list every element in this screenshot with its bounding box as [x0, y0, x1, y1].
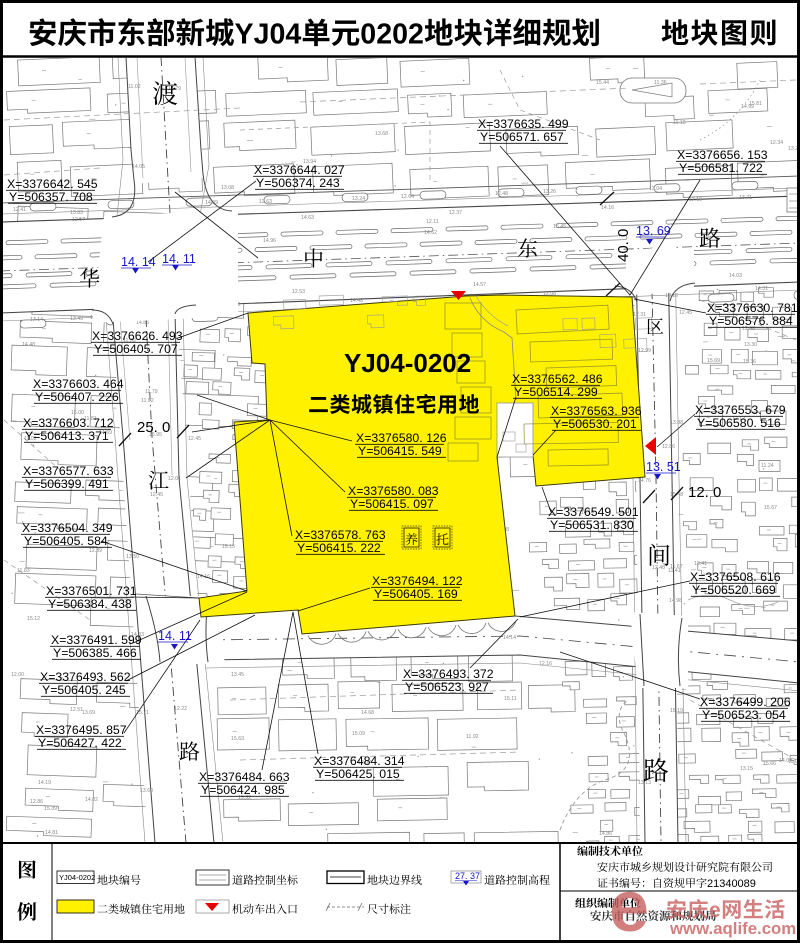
svg-text:X=3376644. 027: X=3376644. 027	[254, 163, 345, 177]
svg-text:15.36: 15.36	[743, 359, 756, 365]
svg-text:14.19: 14.19	[38, 780, 51, 786]
svg-text:Y=506405. 707: Y=506405. 707	[94, 342, 178, 356]
svg-text:Y=506523. 054: Y=506523. 054	[702, 708, 786, 722]
svg-text:X=3376493. 372: X=3376493. 372	[403, 667, 494, 681]
svg-text:13.49: 13.49	[70, 316, 83, 322]
svg-text:Y=506374. 243: Y=506374. 243	[256, 176, 340, 190]
svg-text:13.14: 13.14	[30, 317, 43, 323]
svg-text:X=3376563. 936: X=3376563. 936	[551, 404, 642, 418]
svg-text:Y=506427. 422: Y=506427. 422	[38, 736, 122, 750]
svg-text:X=3376549. 501: X=3376549. 501	[548, 505, 639, 519]
svg-text:14.96: 14.96	[263, 238, 276, 244]
svg-text:Y=506405. 245: Y=506405. 245	[42, 683, 126, 697]
svg-text:14.57: 14.57	[473, 282, 486, 288]
svg-text:15.11: 15.11	[504, 696, 517, 702]
svg-text:Y=506571. 657: Y=506571. 657	[480, 130, 564, 144]
svg-text:Y=506405. 584: Y=506405. 584	[24, 534, 108, 548]
svg-text:Y=506520. 669: Y=506520. 669	[692, 583, 776, 597]
svg-text:13.08: 13.08	[221, 185, 234, 191]
svg-text:15.71: 15.71	[136, 710, 149, 716]
svg-text:12.16: 12.16	[539, 661, 552, 667]
svg-text:14.62: 14.62	[424, 230, 437, 236]
svg-text:Y=506523. 927: Y=506523. 927	[405, 680, 489, 694]
svg-text:Y=506384. 438: Y=506384. 438	[48, 597, 132, 611]
svg-text:X=3376553. 679: X=3376553. 679	[695, 403, 786, 417]
svg-text:12.86: 12.86	[662, 444, 675, 450]
svg-text:11.02: 11.02	[141, 398, 154, 404]
svg-text:27. 37: 27. 37	[455, 871, 480, 881]
svg-text:Y=506576. 884: Y=506576. 884	[709, 314, 793, 328]
svg-text:12.45: 12.45	[679, 310, 692, 316]
svg-text:13.50: 13.50	[126, 554, 139, 560]
svg-text:11.79: 11.79	[145, 389, 158, 395]
svg-text:Y=506399. 491: Y=506399. 491	[25, 477, 109, 491]
svg-text:X=3376494. 122: X=3376494. 122	[372, 574, 463, 588]
svg-text:11.92: 11.92	[466, 734, 479, 740]
svg-text:14.14: 14.14	[503, 635, 516, 641]
svg-text:15.67: 15.67	[764, 505, 777, 511]
svg-text:12.53: 12.53	[292, 289, 305, 295]
svg-text:12.11: 12.11	[426, 219, 439, 225]
svg-text:13.68: 13.68	[375, 131, 388, 137]
svg-text:15.15: 15.15	[222, 544, 235, 550]
svg-text:12.01: 12.01	[168, 476, 181, 482]
svg-text:14. 14: 14. 14	[121, 255, 156, 269]
svg-text:Y=506424. 985: Y=506424. 985	[201, 783, 285, 797]
svg-text:15.66: 15.66	[763, 761, 776, 767]
svg-text:14.02: 14.02	[85, 797, 98, 803]
svg-text:12.41: 12.41	[13, 207, 26, 213]
svg-text:Y=506415. 549: Y=506415. 549	[358, 444, 442, 458]
svg-text:13.30: 13.30	[744, 342, 757, 348]
svg-text:12.48: 12.48	[652, 565, 665, 571]
svg-text:13. 51: 13. 51	[646, 460, 681, 474]
svg-text:www.aqlife.com: www.aqlife.com	[669, 919, 796, 938]
svg-text:14.31: 14.31	[755, 286, 768, 292]
svg-text:12.86: 12.86	[30, 799, 43, 805]
svg-text:X=3376562. 486: X=3376562. 486	[512, 372, 603, 386]
svg-text:X=3376577. 633: X=3376577. 633	[23, 464, 114, 478]
svg-text:X=3376635. 499: X=3376635. 499	[478, 117, 569, 131]
svg-text:X=3376491. 599: X=3376491. 599	[51, 633, 142, 647]
svg-text:Y=506425. 015: Y=506425. 015	[316, 767, 400, 781]
svg-text:X=3376504. 349: X=3376504. 349	[22, 521, 113, 535]
svg-text:13. 69: 13. 69	[636, 224, 671, 238]
svg-text:14.81: 14.81	[45, 830, 58, 836]
svg-text:X=3376578. 763: X=3376578. 763	[295, 528, 386, 542]
svg-text:14. 11: 14. 11	[158, 629, 192, 643]
svg-text:14.86: 14.86	[599, 831, 612, 837]
svg-text:12.45: 12.45	[150, 492, 163, 498]
svg-text:11.67: 11.67	[670, 564, 683, 570]
svg-text:40. 0: 40. 0	[615, 229, 632, 262]
svg-text:Y=506405. 169: Y=506405. 169	[374, 587, 458, 601]
svg-text:12.45: 12.45	[188, 436, 201, 442]
svg-text:13.83: 13.83	[70, 210, 83, 216]
svg-text:12.48: 12.48	[495, 191, 508, 197]
svg-text:X=3376495. 857: X=3376495. 857	[36, 723, 127, 737]
svg-text:12.63: 12.63	[259, 199, 272, 205]
svg-text:X=3376642. 545: X=3376642. 545	[7, 177, 98, 191]
svg-text:14.03: 14.03	[729, 273, 742, 279]
svg-text:13.41: 13.41	[694, 561, 707, 567]
svg-text:14.48: 14.48	[350, 298, 363, 304]
svg-text:X=3376499. 206: X=3376499. 206	[700, 695, 791, 709]
svg-text:X=3376501. 731: X=3376501. 731	[46, 584, 137, 598]
svg-text:14. 11: 14. 11	[162, 252, 196, 266]
svg-text:X=3376630. 781: X=3376630. 781	[707, 301, 798, 315]
svg-text:Y=506530. 201: Y=506530. 201	[553, 417, 637, 431]
svg-text:25. 0: 25. 0	[137, 419, 170, 436]
svg-text:15.48: 15.48	[670, 492, 683, 498]
svg-text:13.71: 13.71	[739, 195, 752, 201]
svg-text:11.83: 11.83	[17, 568, 30, 574]
svg-text:14.98: 14.98	[669, 598, 682, 604]
svg-text:YJ04-0202: YJ04-0202	[344, 348, 471, 378]
svg-text:12.22: 12.22	[174, 706, 187, 712]
svg-text:X=3376493. 562: X=3376493. 562	[40, 670, 131, 684]
svg-text:13.69: 13.69	[82, 710, 95, 716]
svg-text:Y=506415. 097: Y=506415. 097	[350, 497, 434, 511]
svg-text:Y=506407. 226: Y=506407. 226	[35, 390, 119, 404]
svg-text:15.19: 15.19	[670, 708, 683, 714]
svg-text:Y=506581. 722: Y=506581. 722	[679, 161, 763, 175]
svg-text:X=3376603. 464: X=3376603. 464	[33, 377, 124, 391]
svg-text:Y=506580. 516: Y=506580. 516	[697, 416, 781, 430]
svg-text:13.04: 13.04	[649, 186, 662, 192]
svg-text:13.60: 13.60	[140, 788, 153, 794]
svg-text:X=3376656. 153: X=3376656. 153	[677, 148, 768, 162]
svg-text:X=3376626. 493: X=3376626. 493	[92, 329, 183, 343]
svg-text:12.31: 12.31	[633, 312, 646, 318]
svg-text:12. 0: 12. 0	[688, 484, 721, 501]
svg-text:0202: 0202	[360, 19, 424, 51]
svg-text:X=3376580. 126: X=3376580. 126	[356, 431, 447, 445]
svg-text:14.68: 14.68	[361, 710, 374, 716]
svg-text:15.81: 15.81	[749, 101, 762, 107]
svg-text:15.63: 15.63	[231, 736, 244, 742]
svg-text:X=3376484. 314: X=3376484. 314	[314, 754, 405, 768]
svg-text:X=3376484. 663: X=3376484. 663	[199, 770, 290, 784]
svg-text:12.37: 12.37	[449, 210, 462, 216]
svg-text:YJ04: YJ04	[235, 19, 302, 51]
svg-text:15.45: 15.45	[553, 224, 566, 230]
svg-text:11.02: 11.02	[128, 84, 141, 90]
svg-text:12.64: 12.64	[401, 194, 414, 200]
svg-text:Y=506413. 371: Y=506413. 371	[25, 429, 109, 443]
svg-text:X=3376580. 083: X=3376580. 083	[348, 484, 439, 498]
svg-text:Y=506357. 708: Y=506357. 708	[9, 190, 93, 204]
svg-text:14.48: 14.48	[22, 342, 35, 348]
svg-text:15.69: 15.69	[707, 358, 720, 364]
svg-text:12.19: 12.19	[689, 197, 702, 203]
svg-text:13.15: 13.15	[740, 766, 753, 772]
svg-text:15.12: 15.12	[27, 616, 40, 622]
svg-text:15.09: 15.09	[352, 731, 365, 737]
svg-text:13.24: 13.24	[352, 196, 365, 202]
svg-text:Y=506514. 299: Y=506514. 299	[514, 385, 598, 399]
svg-text:13.45: 13.45	[231, 672, 244, 678]
svg-text:YJ04-0202: YJ04-0202	[59, 873, 95, 882]
svg-text:11.10: 11.10	[673, 120, 686, 126]
svg-text:13.88: 13.88	[670, 420, 683, 426]
svg-text:Y=506385. 466: Y=506385. 466	[53, 646, 137, 660]
svg-text:12.99: 12.99	[638, 348, 651, 354]
svg-text:14.05: 14.05	[132, 164, 145, 170]
svg-text:X=3376508. 616: X=3376508. 616	[690, 570, 781, 584]
svg-text:11.24: 11.24	[761, 463, 774, 469]
svg-text:X=3376603. 712: X=3376603. 712	[23, 416, 114, 430]
svg-text:14.86: 14.86	[136, 320, 149, 326]
svg-text:12.34: 12.34	[770, 140, 783, 146]
svg-text:14.63: 14.63	[301, 215, 314, 221]
svg-text:12.39: 12.39	[89, 548, 102, 554]
svg-text:Y=506531. 830: Y=506531. 830	[550, 518, 634, 532]
svg-text:e: e	[609, 867, 649, 943]
svg-text:14.16: 14.16	[601, 205, 614, 211]
svg-text:15.44: 15.44	[596, 80, 609, 86]
svg-text:13.26: 13.26	[543, 189, 556, 195]
svg-text:12.00: 12.00	[11, 672, 24, 678]
svg-text:14.76: 14.76	[638, 478, 651, 484]
svg-text:15.39: 15.39	[44, 806, 57, 812]
svg-text:11.36: 11.36	[654, 80, 667, 86]
svg-text:Y=506415. 222: Y=506415. 222	[297, 541, 381, 555]
svg-text:12.57: 12.57	[72, 217, 85, 223]
svg-text:21340089: 21340089	[707, 878, 756, 890]
